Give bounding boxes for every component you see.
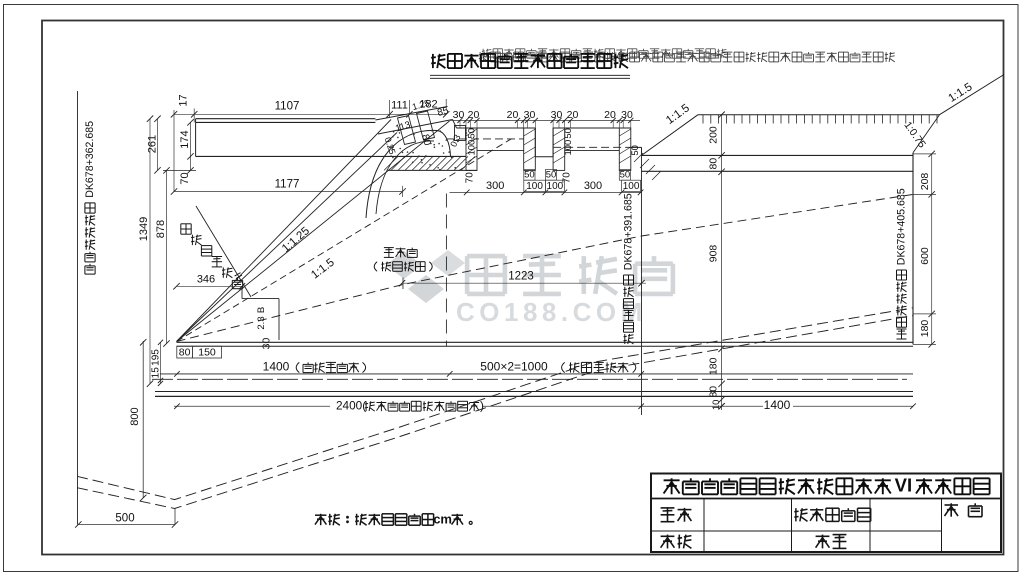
svg-text:195: 195 <box>151 349 162 366</box>
svg-text:10: 10 <box>711 400 722 411</box>
svg-text:50: 50 <box>546 170 557 181</box>
svg-text:70: 70 <box>562 172 573 184</box>
svg-text:cm: cm <box>433 511 452 526</box>
svg-text:2.3: 2.3 <box>256 316 267 329</box>
svg-text:50: 50 <box>524 170 535 181</box>
svg-text:150: 150 <box>198 346 216 358</box>
svg-text:20: 20 <box>468 109 480 121</box>
svg-text:30: 30 <box>524 109 536 121</box>
svg-text:1223: 1223 <box>508 271 534 283</box>
svg-text:15: 15 <box>151 367 162 379</box>
svg-text:70: 70 <box>465 172 476 184</box>
svg-text:208: 208 <box>919 173 931 191</box>
svg-text:B: B <box>256 307 267 313</box>
svg-text:30: 30 <box>453 109 465 121</box>
svg-text:200: 200 <box>707 126 719 144</box>
svg-text:300: 300 <box>486 180 504 192</box>
svg-text:2400(: 2400( <box>336 398 366 412</box>
svg-text:CO188.COM: CO188.COM <box>456 297 647 327</box>
svg-text:500×2=1000: 500×2=1000 <box>480 359 548 373</box>
svg-text:100: 100 <box>563 140 574 156</box>
svg-text:50: 50 <box>563 128 574 139</box>
svg-text:1177: 1177 <box>275 179 300 191</box>
svg-text:DK678+405.685: DK678+405.685 <box>895 188 907 265</box>
svg-text:261: 261 <box>146 135 158 153</box>
svg-text:100: 100 <box>623 181 640 192</box>
svg-text:DK678+391.685: DK678+391.685 <box>622 193 634 270</box>
svg-text:100: 100 <box>526 181 543 192</box>
svg-text:180: 180 <box>919 320 931 338</box>
svg-text:20: 20 <box>567 109 579 121</box>
svg-text:80: 80 <box>707 158 719 170</box>
svg-text:50: 50 <box>467 128 478 139</box>
svg-text:VI: VI <box>895 475 912 496</box>
svg-text:174: 174 <box>179 130 191 148</box>
svg-text:500: 500 <box>115 513 134 525</box>
svg-text:50: 50 <box>630 145 641 156</box>
svg-text:30: 30 <box>621 109 633 121</box>
svg-text:300: 300 <box>584 180 602 192</box>
svg-text:20: 20 <box>507 109 519 121</box>
svg-text:30: 30 <box>260 338 272 350</box>
svg-text:111: 111 <box>391 99 408 111</box>
svg-text:600: 600 <box>919 247 931 265</box>
svg-text:1400: 1400 <box>764 398 791 412</box>
svg-text:70: 70 <box>179 172 191 184</box>
svg-text:878: 878 <box>155 220 167 238</box>
svg-text:20: 20 <box>604 109 616 121</box>
svg-text:1107: 1107 <box>275 101 300 113</box>
svg-text:346: 346 <box>197 273 215 285</box>
svg-text:17: 17 <box>177 94 189 106</box>
svg-text:180: 180 <box>707 357 719 375</box>
svg-text:50: 50 <box>620 170 631 181</box>
svg-text:908: 908 <box>707 245 719 263</box>
svg-text:DK678+362.685: DK678+362.685 <box>84 121 96 198</box>
svg-text:30: 30 <box>551 109 563 121</box>
svg-text:1349: 1349 <box>138 217 150 241</box>
svg-text:100: 100 <box>467 140 478 156</box>
svg-text:800: 800 <box>129 407 141 425</box>
svg-text:80: 80 <box>179 346 191 358</box>
svg-text:1400: 1400 <box>263 359 290 373</box>
